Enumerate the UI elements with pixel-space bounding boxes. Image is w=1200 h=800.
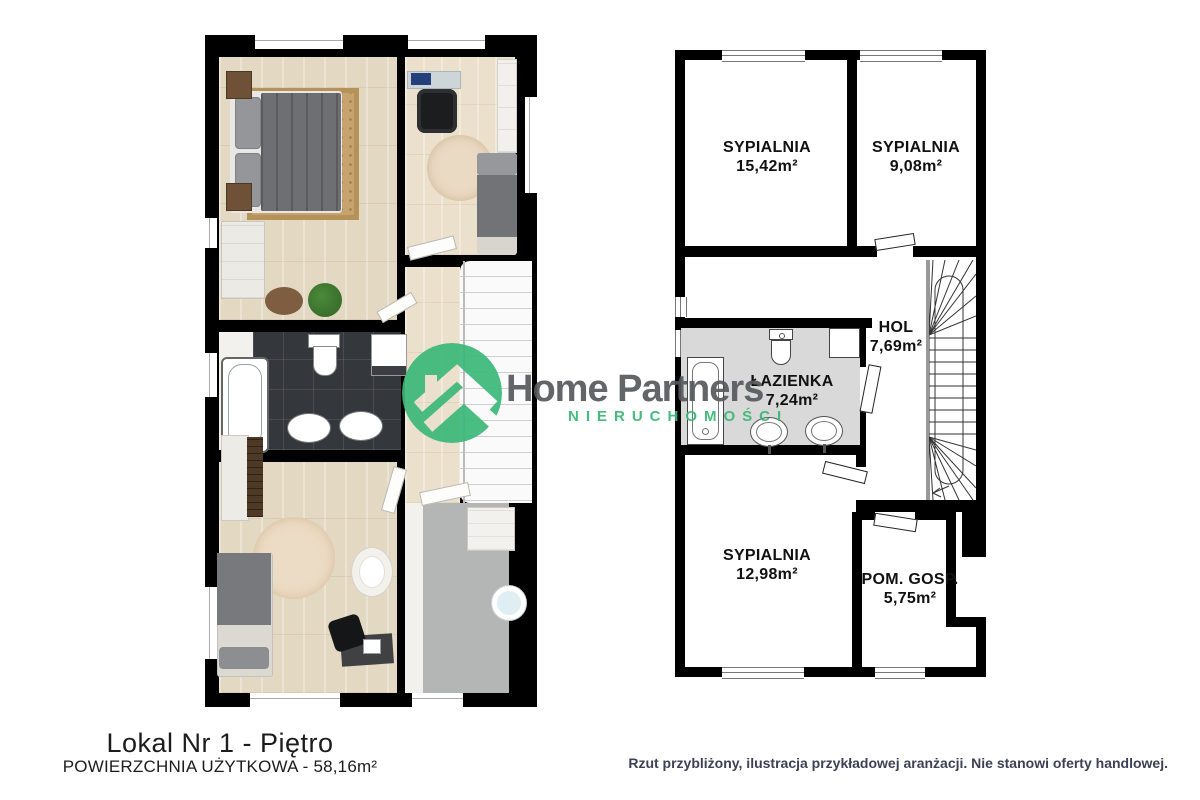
window (412, 693, 463, 707)
wardrobe-dark (247, 437, 263, 517)
wall-segment (804, 667, 875, 677)
room-label-sypialnia-3: SYPIALNIA 12,98m² (682, 546, 852, 584)
unit-title: Lokal Nr 1 - Piętro (60, 728, 380, 759)
sink-faucet (823, 444, 826, 453)
cabinet (467, 507, 515, 551)
toilet-bowl (771, 340, 791, 365)
plant (308, 283, 342, 317)
room-label-pom-gosp: POM. GOSP. 5,75m² (850, 570, 970, 608)
wall-segment (913, 246, 986, 257)
nightstand (226, 183, 252, 211)
room-label-sypialnia-2: SYPIALNIA 9,08m² (854, 138, 978, 176)
pillow (477, 153, 517, 175)
wall-segment (675, 246, 877, 257)
door-leaf (873, 513, 918, 533)
bed-blanket (261, 93, 341, 211)
room-area: 9,08m² (854, 157, 978, 176)
wardrobe (221, 221, 265, 299)
window (860, 50, 942, 62)
sink-basin (756, 422, 782, 442)
room-name: POM. GOSP. (850, 570, 970, 589)
home-partners-wordmark: Home Partners (506, 368, 763, 411)
bed-blanket (477, 175, 517, 237)
pouf (265, 287, 303, 315)
laptop (363, 639, 381, 654)
bathtub-basin (228, 364, 262, 446)
nightstand (226, 71, 252, 99)
sink (287, 413, 331, 443)
toilet-tank (769, 329, 793, 340)
pillow (219, 647, 269, 669)
wall-segment (915, 510, 946, 520)
wall-segment (675, 667, 722, 677)
room-label-sypialnia-1: SYPIALNIA 15,42m² (682, 138, 852, 176)
toilet-bowl (313, 346, 337, 376)
room-label-hol: HOL 7,69m² (836, 318, 956, 356)
toilet-button (779, 333, 785, 339)
office-chair (417, 89, 457, 133)
bathtub-drain (702, 428, 709, 435)
wall-segment (976, 50, 986, 510)
home-partners-tagline: NIERUCHOMOŚCI (568, 408, 788, 425)
wall-segment (962, 512, 986, 557)
round-table (491, 585, 527, 621)
staircase-2d (925, 260, 976, 500)
wall-segment (946, 617, 986, 627)
window (525, 97, 537, 193)
washer-panel (372, 366, 406, 375)
usable-area-subtitle: POWIERZCHNIA UŻYTKOWA - 58,16m² (40, 757, 400, 777)
schematic-2d-floorplan: SYPIALNIA 15,42m² SYPIALNIA 9,08m² HOL 7… (672, 50, 986, 677)
window (722, 667, 804, 679)
egg-chair (351, 547, 393, 597)
wall-segment (925, 667, 986, 677)
cabinet (221, 435, 249, 521)
room-area: 15,42m² (682, 157, 852, 176)
window (722, 50, 805, 62)
window (255, 35, 343, 49)
floorplan-page: SYPIALNIA 15,42m² SYPIALNIA 9,08m² HOL 7… (0, 0, 1200, 800)
window (205, 587, 217, 659)
window (875, 667, 925, 679)
room-area: 5,75m² (850, 589, 970, 608)
wardrobe (497, 59, 517, 153)
room-area: 7,69m² (836, 337, 956, 356)
room-name: SYPIALNIA (854, 138, 978, 157)
door-leaf (874, 233, 915, 251)
round-table-top (497, 591, 521, 615)
home-partners-logo-icon (402, 343, 502, 443)
window (675, 297, 687, 317)
sink (339, 411, 383, 441)
sink-faucet (768, 445, 771, 454)
wall-segment (862, 510, 875, 520)
pillow (235, 97, 261, 149)
disclaimer-text: Rzut przybliżony, ilustracja przykładowe… (628, 755, 1168, 771)
wall-segment (805, 50, 860, 60)
sink-basin (811, 421, 837, 441)
room-name: HOL (836, 318, 956, 337)
window (250, 693, 340, 707)
utility-cabinet-band (405, 503, 423, 693)
room-name: SYPIALNIA (682, 138, 852, 157)
room-area: 12,98m² (682, 565, 852, 584)
window (205, 218, 217, 248)
wall-segment (856, 455, 866, 467)
window (408, 35, 485, 49)
laptop (411, 73, 431, 85)
sink (805, 416, 843, 446)
egg-chair-seat (359, 556, 385, 588)
wall-segment (946, 510, 956, 627)
window (205, 353, 217, 397)
room-name: SYPIALNIA (682, 546, 852, 565)
bed-blanket (217, 553, 271, 625)
